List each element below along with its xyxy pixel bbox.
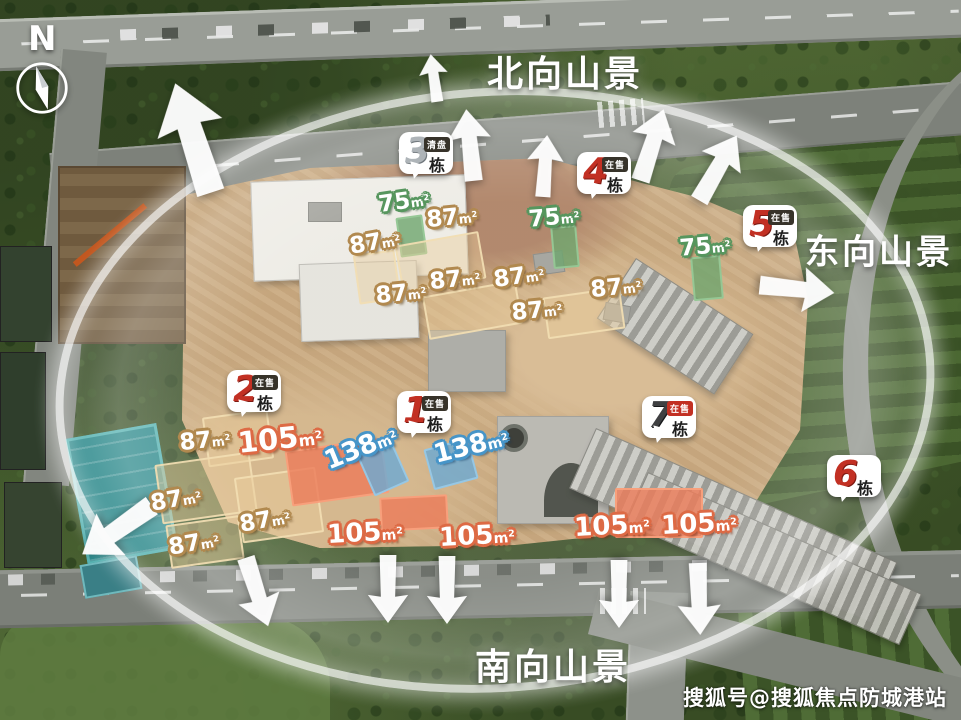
compass-needle-icon: [14, 60, 70, 116]
unit-size-value: 87: [492, 263, 527, 293]
building-status-badge: 在售: [422, 396, 448, 411]
unit-size-unit: m2: [458, 210, 478, 227]
arrow-icon: [416, 52, 452, 104]
building-unit-suffix: 栋: [672, 416, 688, 440]
unit-size-label: 105m2: [327, 518, 404, 548]
unit-size-value: 87: [589, 274, 624, 303]
building-6-bubble: 6栋: [827, 455, 881, 497]
arrow-icon: [367, 555, 409, 623]
unit-size-unit: m2: [525, 268, 546, 285]
unit-size-value: 105: [326, 517, 382, 550]
building-unit-suffix: 栋: [257, 390, 273, 414]
unit-footprint-green: [690, 255, 724, 301]
unit-size-value: 105: [438, 520, 494, 553]
view-direction-arrow: [524, 134, 566, 198]
north-mountain-view-label: 北向山景: [487, 45, 643, 97]
building-1-bubble: 1在售栋: [397, 391, 451, 433]
unit-size-unit: m2: [493, 530, 515, 547]
unit-size-value: 105: [573, 510, 629, 543]
unit-size-value: 87: [167, 530, 203, 561]
view-direction-arrow: [598, 560, 640, 628]
aerial-site-plan: 75m275m275m287m287m287m287m287m287m287m2…: [0, 0, 961, 720]
building-unit-suffix: 栋: [607, 172, 623, 196]
unit-size-label: 105m2: [661, 509, 738, 539]
unit-size-unit: m2: [182, 490, 203, 508]
unit-size-unit: m2: [407, 286, 427, 303]
unit-size-unit: m2: [381, 233, 402, 251]
unit-size-unit: m2: [711, 239, 731, 256]
unit-size-value: 87: [425, 204, 460, 233]
building-4-bubble: 4在售栋: [577, 152, 631, 194]
unit-size-value: 87: [428, 266, 463, 295]
building-3-bubble: 3清盘栋: [399, 132, 453, 174]
building-status-badge: 在售: [768, 210, 794, 225]
neighbor-building-west: [0, 246, 52, 342]
unit-size-value: 75: [377, 188, 412, 218]
view-direction-arrow: [367, 555, 409, 623]
unit-size-label: 105m2: [574, 511, 651, 541]
unit-size-label: 105m2: [439, 521, 516, 551]
building-status-badge: 清盘: [424, 137, 450, 152]
unit-size-value: 87: [510, 297, 545, 326]
building-status-badge: 在售: [602, 157, 628, 172]
building-unit-suffix: 栋: [773, 225, 789, 249]
compass: N: [14, 22, 74, 134]
building-status-badge: 在售: [252, 375, 278, 390]
unit-size-value: 75: [678, 233, 712, 262]
unit-size-unit: m2: [211, 433, 231, 450]
unit-size-unit: m2: [271, 511, 292, 529]
view-direction-arrow: [426, 556, 468, 624]
building-unit-suffix: 栋: [429, 152, 445, 176]
building-2-bubble: 2在售栋: [227, 370, 281, 412]
building-unit-suffix: 栋: [427, 411, 443, 435]
south-mountain-view-label: 南向山景: [475, 638, 631, 690]
unit-size-value: 75: [527, 204, 561, 233]
arrow-icon: [598, 560, 640, 628]
unit-size-value: 87: [178, 427, 213, 456]
unit-size-value: 105: [660, 508, 716, 541]
arrow-icon: [675, 562, 722, 636]
unit-footprint-green: [550, 225, 580, 269]
unit-size-value: 87: [149, 486, 185, 517]
arrow-icon: [426, 556, 468, 624]
building-number: 6: [833, 452, 858, 497]
unit-size-value: 87: [348, 229, 384, 260]
watermark: 搜狐号@搜狐焦点防城港站: [683, 682, 947, 712]
unit-size-unit: m2: [461, 272, 481, 289]
compass-north-label: N: [28, 22, 74, 56]
unit-size-unit: m2: [543, 303, 563, 320]
building-7-bubble: 7在售栋: [642, 396, 696, 438]
unit-size-unit: m2: [628, 520, 650, 537]
east-mountain-view-label: 东向山景: [805, 225, 953, 274]
unit-size-label: 75m2: [528, 204, 581, 231]
unit-size-value: 87: [374, 280, 409, 309]
unit-size-unit: m2: [715, 518, 737, 535]
unit-size-label: 75m2: [679, 233, 732, 260]
unit-size-unit: m2: [622, 280, 642, 297]
building-status-badge: 在售: [667, 401, 693, 416]
unit-size-unit: m2: [200, 534, 221, 552]
view-direction-arrow: [675, 562, 722, 636]
unit-size-value: 87: [238, 507, 274, 538]
unit-size-unit: m2: [381, 527, 403, 544]
unit-size-unit: m2: [560, 210, 580, 227]
view-direction-arrow: [416, 52, 452, 104]
building-5-bubble: 5在售栋: [743, 205, 797, 247]
building-unit-suffix: 栋: [857, 475, 873, 499]
arrow-icon: [524, 134, 566, 198]
